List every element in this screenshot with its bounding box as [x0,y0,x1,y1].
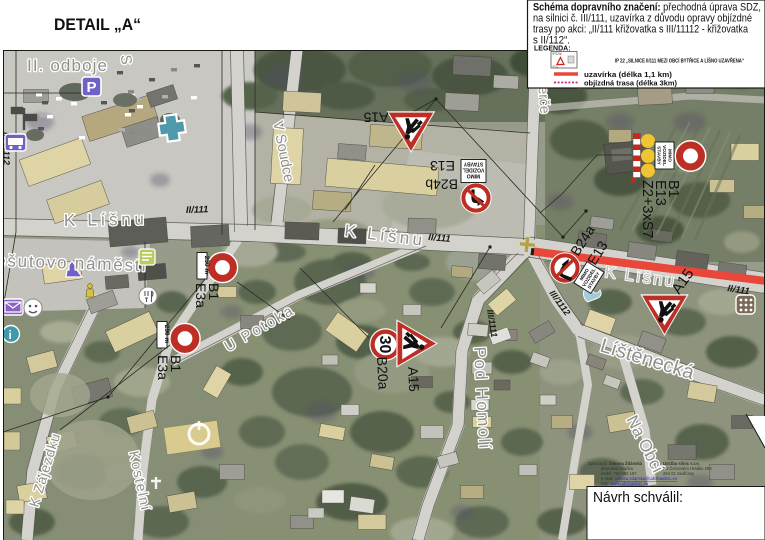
svg-text:STAVBY: STAVBY [463,161,483,167]
svg-text:II. odboje: II. odboje [27,56,107,75]
svg-text:Z2+3xS7: Z2+3xS7 [639,180,655,238]
svg-text:E3a: E3a [155,355,171,380]
svg-text:MIMO: MIMO [667,149,673,162]
svg-text:objízdná trasa (délka 3km): objízdná trasa (délka 3km) [584,79,677,88]
svg-text:http: www.udrzbasilnic.eu: http: www.udrzbasilnic.eu [601,481,649,486]
svg-text:30: 30 [376,336,393,354]
svg-text:Návrh schválil:: Návrh schválil: [593,489,683,506]
svg-text:STAVBY: STAVBY [656,146,662,166]
svg-text:264 01 Sedlčany: 264 01 Sedlčany [663,471,695,476]
svg-text:A15: A15 [363,110,388,126]
svg-text:B24b: B24b [425,177,458,193]
svg-text:A15: A15 [405,366,422,392]
svg-text:VOZIDEL: VOZIDEL [661,145,667,166]
svg-text:S: S [117,54,135,65]
svg-text:E3a: E3a [193,283,209,308]
svg-text:P: P [87,79,97,96]
svg-text:290 m: 290 m [163,325,170,344]
svg-text:IP 22 „SILNICE II/111 MEZI OBC: IP 22 „SILNICE II/111 MEZI OBCÍ BYTŘICE … [615,57,744,65]
svg-text:E13: E13 [430,158,455,174]
svg-text:B20a: B20a [374,356,392,390]
svg-text:230 m: 230 m [203,256,210,275]
svg-text:II/111: II/111 [428,232,451,245]
svg-text:IP22: IP22 [553,65,559,69]
svg-text:IP22/e: IP22/e [553,52,562,56]
svg-text:i: i [9,328,12,342]
svg-text:DETAIL „A“: DETAIL „A“ [54,16,141,34]
svg-text:II/111: II/111 [186,204,209,216]
